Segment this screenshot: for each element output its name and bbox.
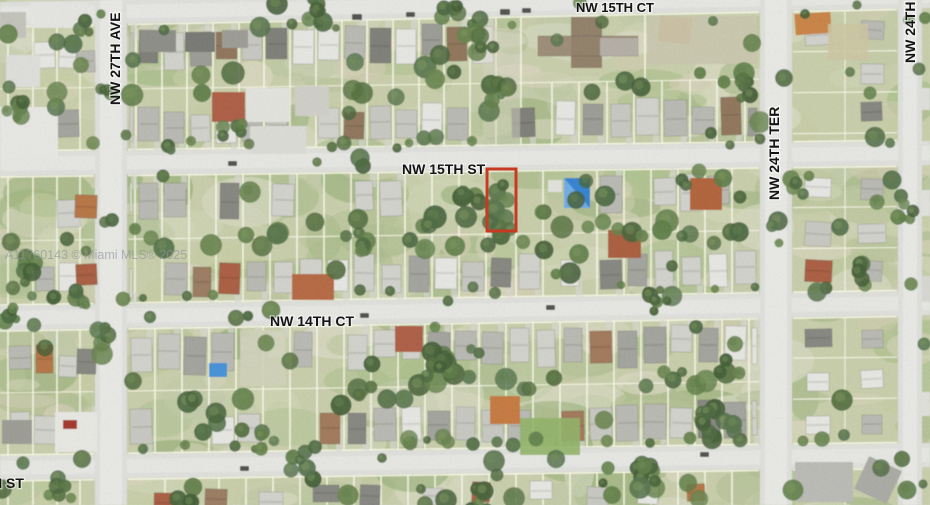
svg-text:NW 24TH: NW 24TH [902,2,918,63]
svg-text:NW 27TH AVE: NW 27TH AVE [107,12,123,105]
svg-text:NW 15TH CT: NW 15TH CT [576,0,654,15]
svg-text:A11760143 © Miami MLS® 2025: A11760143 © Miami MLS® 2025 [5,248,187,262]
svg-text:NW 14TH CT: NW 14TH CT [270,313,354,329]
svg-text:H ST: H ST [0,475,24,491]
svg-text:NW 24TH TER: NW 24TH TER [766,107,782,200]
svg-text:NW 15TH ST: NW 15TH ST [402,161,486,177]
